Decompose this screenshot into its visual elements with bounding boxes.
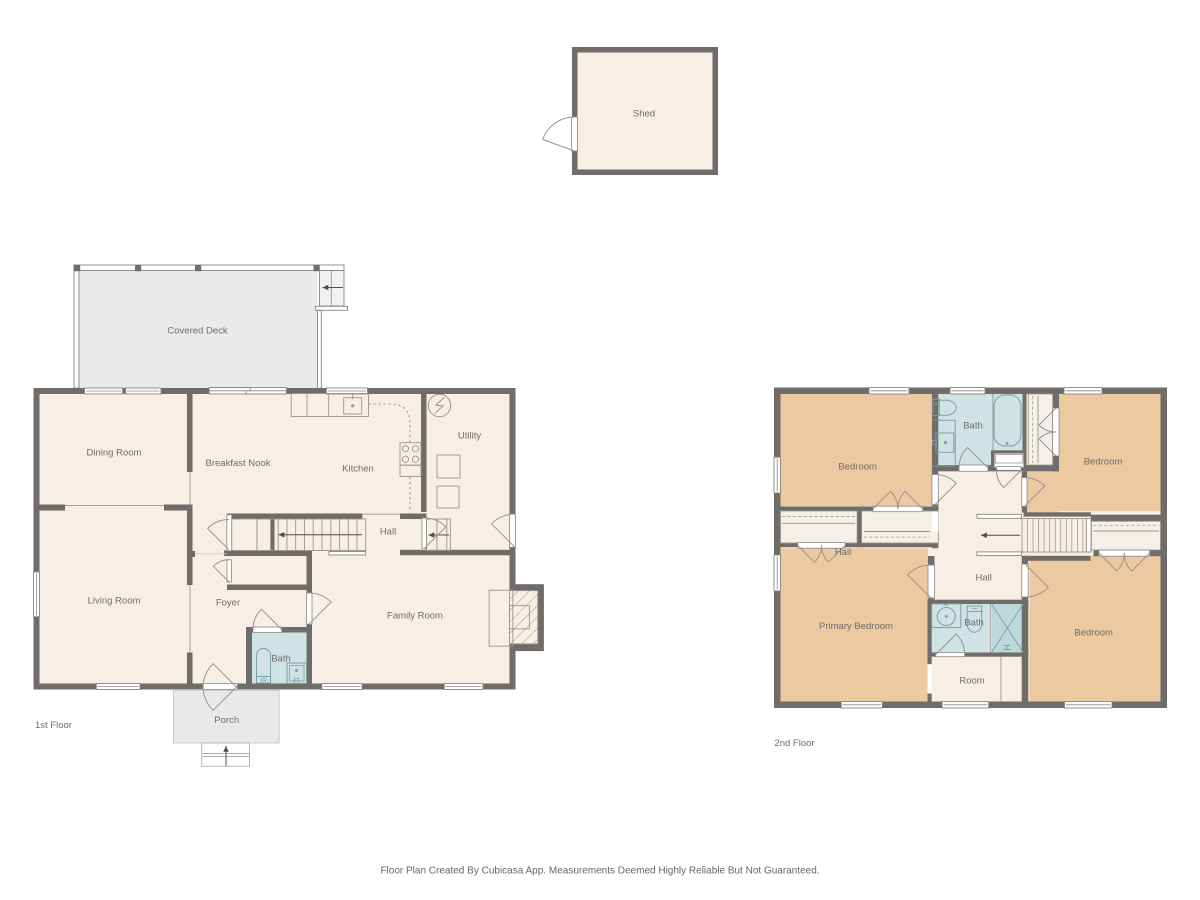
svg-text:Covered Deck: Covered Deck [167, 326, 227, 337]
svg-text:Bath: Bath [963, 421, 983, 432]
svg-text:Bedroom: Bedroom [1074, 628, 1113, 639]
svg-text:Room: Room [959, 676, 984, 687]
svg-text:Hall: Hall [380, 527, 396, 538]
svg-text:Living Room: Living Room [88, 596, 141, 607]
svg-text:Family Room: Family Room [387, 611, 443, 622]
svg-text:Shed: Shed [633, 109, 655, 120]
svg-text:Foyer: Foyer [216, 598, 240, 609]
svg-text:Bedroom: Bedroom [838, 462, 877, 473]
svg-text:Hall: Hall [835, 547, 851, 558]
svg-text:Bath: Bath [964, 618, 984, 629]
svg-text:Floor Plan Created By Cubicasa: Floor Plan Created By Cubicasa App. Meas… [380, 866, 819, 877]
svg-text:Bedroom: Bedroom [1084, 457, 1123, 468]
svg-text:Primary Bedroom: Primary Bedroom [819, 621, 893, 632]
svg-text:Dining Room: Dining Room [87, 448, 142, 459]
svg-text:Kitchen: Kitchen [342, 464, 374, 475]
svg-text:Porch: Porch [214, 715, 239, 726]
svg-text:1st Floor: 1st Floor [35, 720, 72, 731]
svg-text:Hall: Hall [976, 573, 992, 584]
svg-text:Utility: Utility [458, 431, 481, 442]
svg-text:Bath: Bath [271, 654, 291, 665]
svg-text:Breakfast Nook: Breakfast Nook [206, 458, 271, 469]
svg-text:2nd Floor: 2nd Floor [774, 738, 814, 749]
